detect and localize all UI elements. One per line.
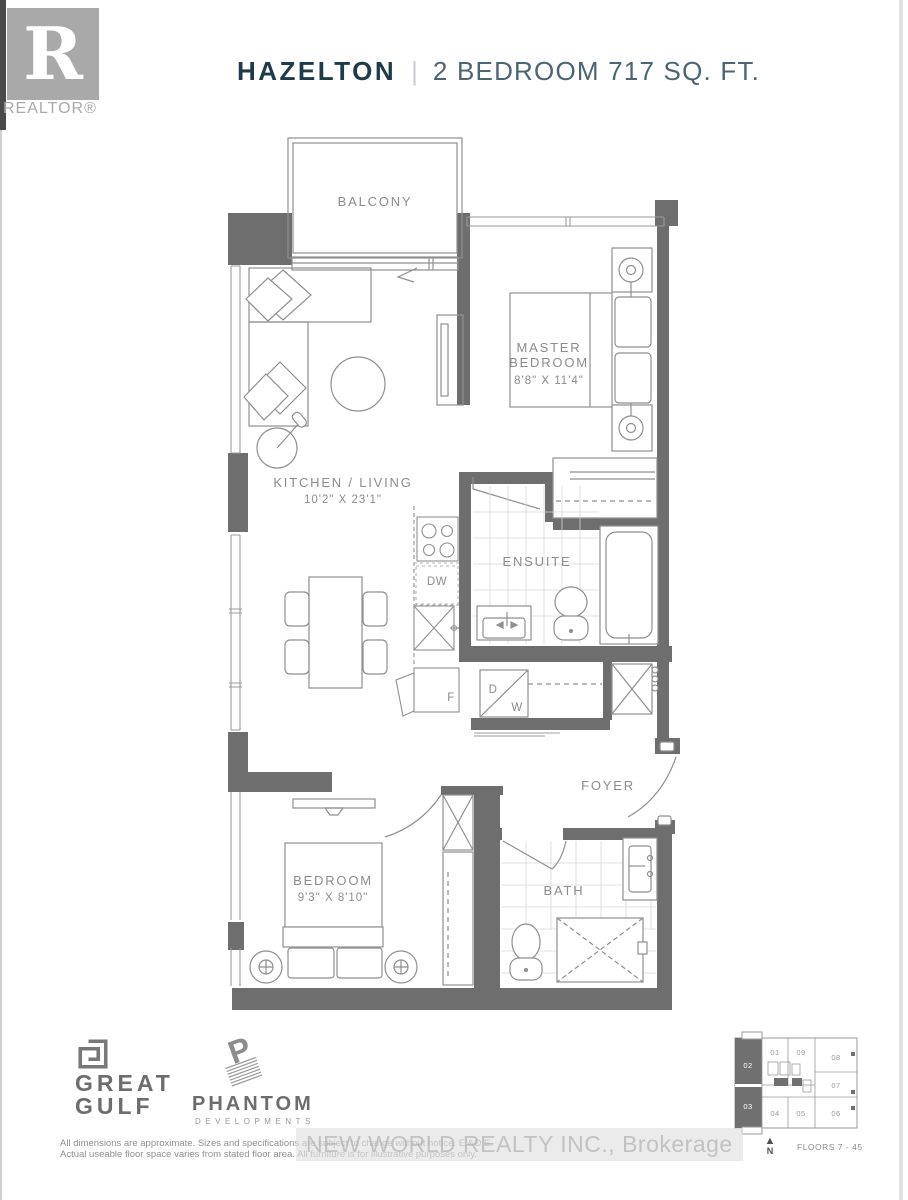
foyer-closet — [612, 664, 658, 714]
bedroom2-door — [385, 795, 441, 837]
great-gulf-icon — [75, 1036, 111, 1072]
floorplan-page: R REALTOR® HAZELTON | 2 BEDROOM 717 SQ. … — [0, 0, 908, 1200]
phantom-logo: P — [211, 1028, 271, 1090]
bedroom2-label: BEDROOM — [293, 873, 373, 888]
page-right-edge — [899, 0, 903, 1200]
svg-text:P: P — [223, 1030, 256, 1071]
keyplan-unit-02: 02 — [743, 1061, 752, 1070]
plan-title-row: HAZELTON | 2 BEDROOM 717 SQ. FT. — [237, 56, 760, 87]
keyplan-unit-09: 09 — [796, 1048, 805, 1057]
keyplan-unit-04: 04 — [770, 1109, 779, 1118]
bedroom2-bed — [283, 843, 383, 978]
dishwasher-label: DW — [427, 576, 447, 588]
phantom-developments-label: DEVELOPMENTS — [195, 1117, 315, 1126]
great-gulf-wordmark: GREAT GULF — [75, 1072, 174, 1118]
realtor-wordmark: REALTOR® — [3, 100, 113, 118]
bath-vanity — [623, 838, 657, 900]
bedroom2 — [250, 795, 473, 985]
kitchen — [396, 506, 459, 716]
dryer-label: D — [489, 684, 498, 696]
title-divider: | — [411, 56, 418, 87]
bath-door — [503, 841, 552, 869]
dining-set — [285, 577, 387, 688]
balcony — [288, 138, 462, 282]
great-gulf-line2: GULF — [75, 1095, 174, 1118]
master-dims: 8'8" X 11'4" — [514, 375, 584, 387]
page-left-edge — [0, 0, 2, 1200]
balcony-label: BALCONY — [338, 194, 413, 209]
north-arrow-icon: ▲ — [760, 1136, 780, 1146]
floors-range-label: FLOORS 7 - 45 — [797, 1142, 863, 1152]
master-label-2: BEDROOM — [509, 355, 589, 370]
foyer-label: FOYER — [581, 778, 635, 793]
bath-label: BATH — [544, 883, 585, 898]
entry-door-swing — [628, 757, 676, 817]
north-arrow: ▲ N — [760, 1136, 780, 1156]
entry-hinge-bottom — [658, 816, 671, 825]
bedroom2-closet — [443, 795, 473, 985]
master-label-1: MASTER — [517, 340, 582, 355]
entry-hinge-top — [660, 742, 674, 751]
master-closet — [553, 458, 657, 518]
kitchen-sink — [414, 606, 459, 650]
north-label: N — [760, 1146, 780, 1156]
fridge-label: F — [447, 692, 455, 704]
phantom-wordmark: PHANTOM — [192, 1093, 314, 1116]
shower — [557, 918, 647, 982]
keyplan-unit-05: 05 — [796, 1109, 805, 1118]
sofa-pillows — [244, 270, 311, 420]
bedroom2-shelf — [293, 799, 375, 815]
kitchen-living-dims: 10'2" X 23'1" — [304, 494, 382, 506]
realtor-logo: R — [7, 8, 99, 100]
ensuite-toilet — [554, 587, 588, 640]
washer-label: W — [511, 702, 522, 714]
ensuite-label: ENSUITE — [503, 554, 572, 569]
kitchen-living-label: KITCHEN / LIVING — [273, 475, 412, 490]
master-nightstands — [612, 248, 652, 451]
bathtub — [600, 526, 658, 644]
page-subtitle: 2 BEDROOM 717 SQ. FT. — [433, 56, 760, 87]
brokerage-watermark: NEW WORLD REALTY INC., Brokerage — [296, 1128, 743, 1161]
floorplan-drawing: BALCONY — [225, 128, 687, 1020]
great-gulf-line1: GREAT — [75, 1072, 174, 1095]
bath-toilet — [510, 924, 542, 980]
ensuite-vanity — [477, 606, 531, 640]
realtor-r-icon: R — [23, 18, 83, 90]
keyplan-unit-06: 06 — [831, 1109, 840, 1118]
page-title: HAZELTON — [237, 56, 396, 87]
bedroom2-dims: 9'3" X 8'10" — [298, 892, 369, 904]
coffee-table — [331, 357, 385, 411]
keyplan-highlighted-units — [735, 1038, 762, 1128]
foyer — [628, 742, 676, 825]
keyplan-unit-03: 03 — [743, 1102, 752, 1111]
ensuite-fixtures — [477, 526, 658, 644]
keyplan-unit-07: 07 — [831, 1081, 840, 1090]
cooktop — [417, 517, 458, 561]
keyplan-unit-08: 08 — [831, 1053, 840, 1062]
keyplan-unit-01: 01 — [770, 1048, 779, 1057]
